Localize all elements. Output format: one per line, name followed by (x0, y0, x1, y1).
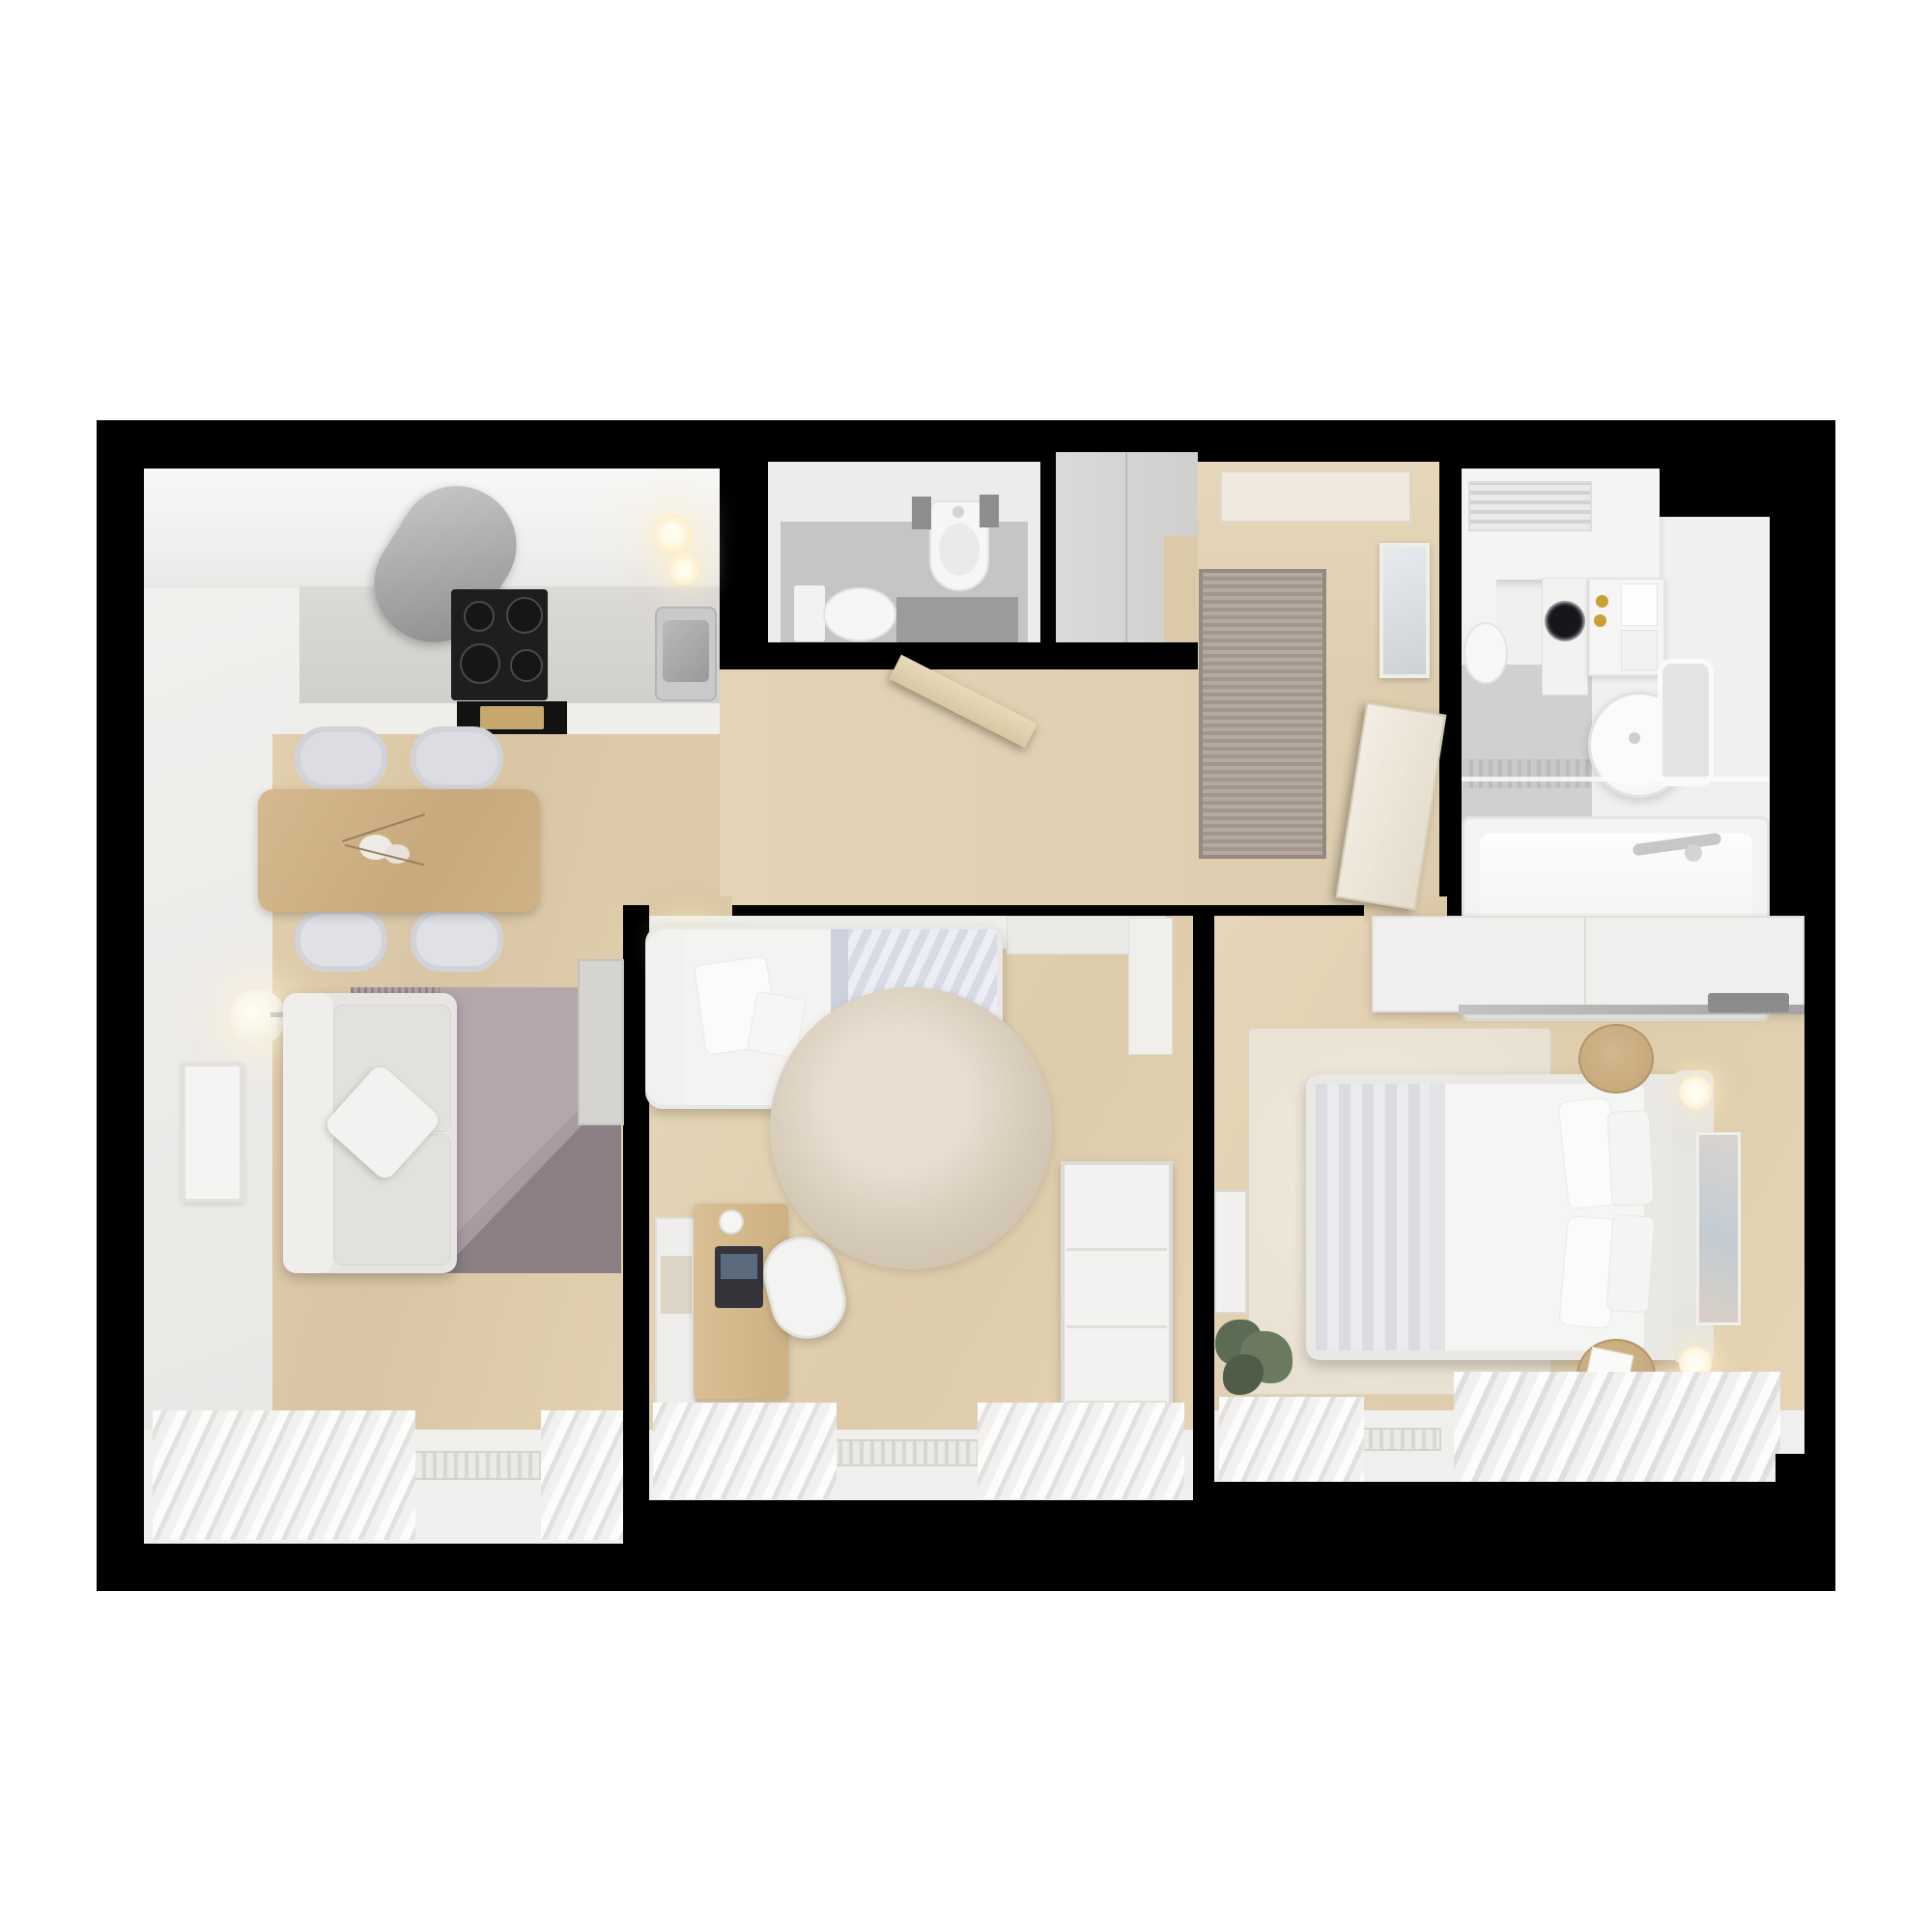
closet-door-seam (1125, 452, 1127, 642)
tv-console (578, 959, 624, 1125)
burner-1 (464, 601, 495, 632)
wc-bath-mat (896, 597, 1018, 642)
bedroom-wall-art (1696, 1132, 1741, 1325)
wall-sconce-top-icon (1679, 1076, 1712, 1109)
kids-dresser-drawer-line (1066, 1248, 1167, 1251)
cabinet-towel-stack-2 (1621, 630, 1658, 670)
hall-runner-rug (1199, 569, 1326, 859)
kids-tall-cabinet (1128, 918, 1173, 1055)
bathroom-step-wall-patch (1658, 469, 1772, 517)
kids-round-rug (770, 987, 1052, 1269)
nightstand-round-top (1578, 1024, 1654, 1094)
kids-desk-lamp (719, 1209, 744, 1235)
dining-chair-4 (411, 908, 503, 972)
dining-chair-3 (295, 908, 387, 972)
floor-lamp-shade (230, 989, 286, 1045)
wc-towel-1 (912, 497, 931, 529)
burner-2 (506, 597, 543, 634)
glass-shelf (1462, 777, 1770, 781)
bedroom-left-dresser (1214, 1190, 1247, 1314)
entry-front-door (1219, 469, 1412, 524)
passage-wood-floor (623, 734, 720, 905)
oven-door-inner (480, 706, 544, 729)
dining-chair-1 (295, 726, 387, 790)
sink-drain (1629, 732, 1640, 744)
bathroom-toilet-tank (1462, 580, 1496, 626)
dining-chair-2 (411, 726, 503, 790)
burner-3 (460, 643, 500, 684)
soap-dispenser-gold-2 (1594, 614, 1606, 627)
kids-curtain-right (978, 1403, 1184, 1499)
wardrobe-seam (1584, 918, 1586, 1010)
kids-dresser-drawer-line-2 (1066, 1325, 1167, 1328)
bedroom-curtain-right (1454, 1372, 1780, 1482)
sofa-backrest (283, 993, 333, 1273)
living-curtain-left (153, 1410, 415, 1540)
pendant-lamp-icon (653, 515, 692, 554)
bathroom-mat (1463, 759, 1591, 788)
wc-towel-2 (980, 495, 999, 527)
floor-plan-canvas (0, 0, 1932, 1932)
bathroom-mirror (1658, 659, 1714, 786)
burner-4 (510, 649, 543, 682)
wc-toilet-tank (794, 585, 825, 641)
kids-laptop-screen (721, 1254, 757, 1279)
pendant-lamp-icon-2 (668, 554, 699, 585)
bedroom-curtain-left (1219, 1397, 1364, 1482)
bedroom-corner-wall-patch (1776, 1454, 1835, 1591)
entry-mirror (1379, 543, 1430, 678)
living-curtain-right (541, 1410, 623, 1540)
living-wall-art (182, 1063, 243, 1203)
kids-radiator (819, 1439, 979, 1466)
wardrobe-rail-bracket (1708, 993, 1789, 1012)
bathroom-toilet-bowl (1463, 622, 1508, 684)
wc-bidet-basin (939, 524, 980, 576)
wc-toilet-bowl (823, 587, 896, 641)
soap-dispenser-gold (1596, 595, 1608, 608)
kids-curtain-left (653, 1403, 837, 1499)
corridor-floor (720, 669, 1439, 905)
bed-pillow-3 (1606, 1110, 1654, 1207)
kids-wall-shelf-linen-print (655, 1217, 696, 1410)
wc-bidet-faucet (952, 506, 964, 518)
closet-wood-strip (1164, 536, 1198, 642)
bedroom-blanket (1316, 1084, 1430, 1350)
kitchen-faucet (674, 591, 688, 605)
washing-machine-door (1545, 601, 1585, 641)
bathtub-faucet-handle (1685, 844, 1702, 862)
kitchen-sink-basin (663, 620, 709, 682)
cabinet-towel-stack (1621, 583, 1658, 626)
towel-radiator-grille (1468, 481, 1592, 531)
bedroom-sheet-fold (1430, 1084, 1445, 1350)
bed-pillow-4 (1606, 1214, 1656, 1314)
kids-linen-canvas (661, 1256, 692, 1314)
